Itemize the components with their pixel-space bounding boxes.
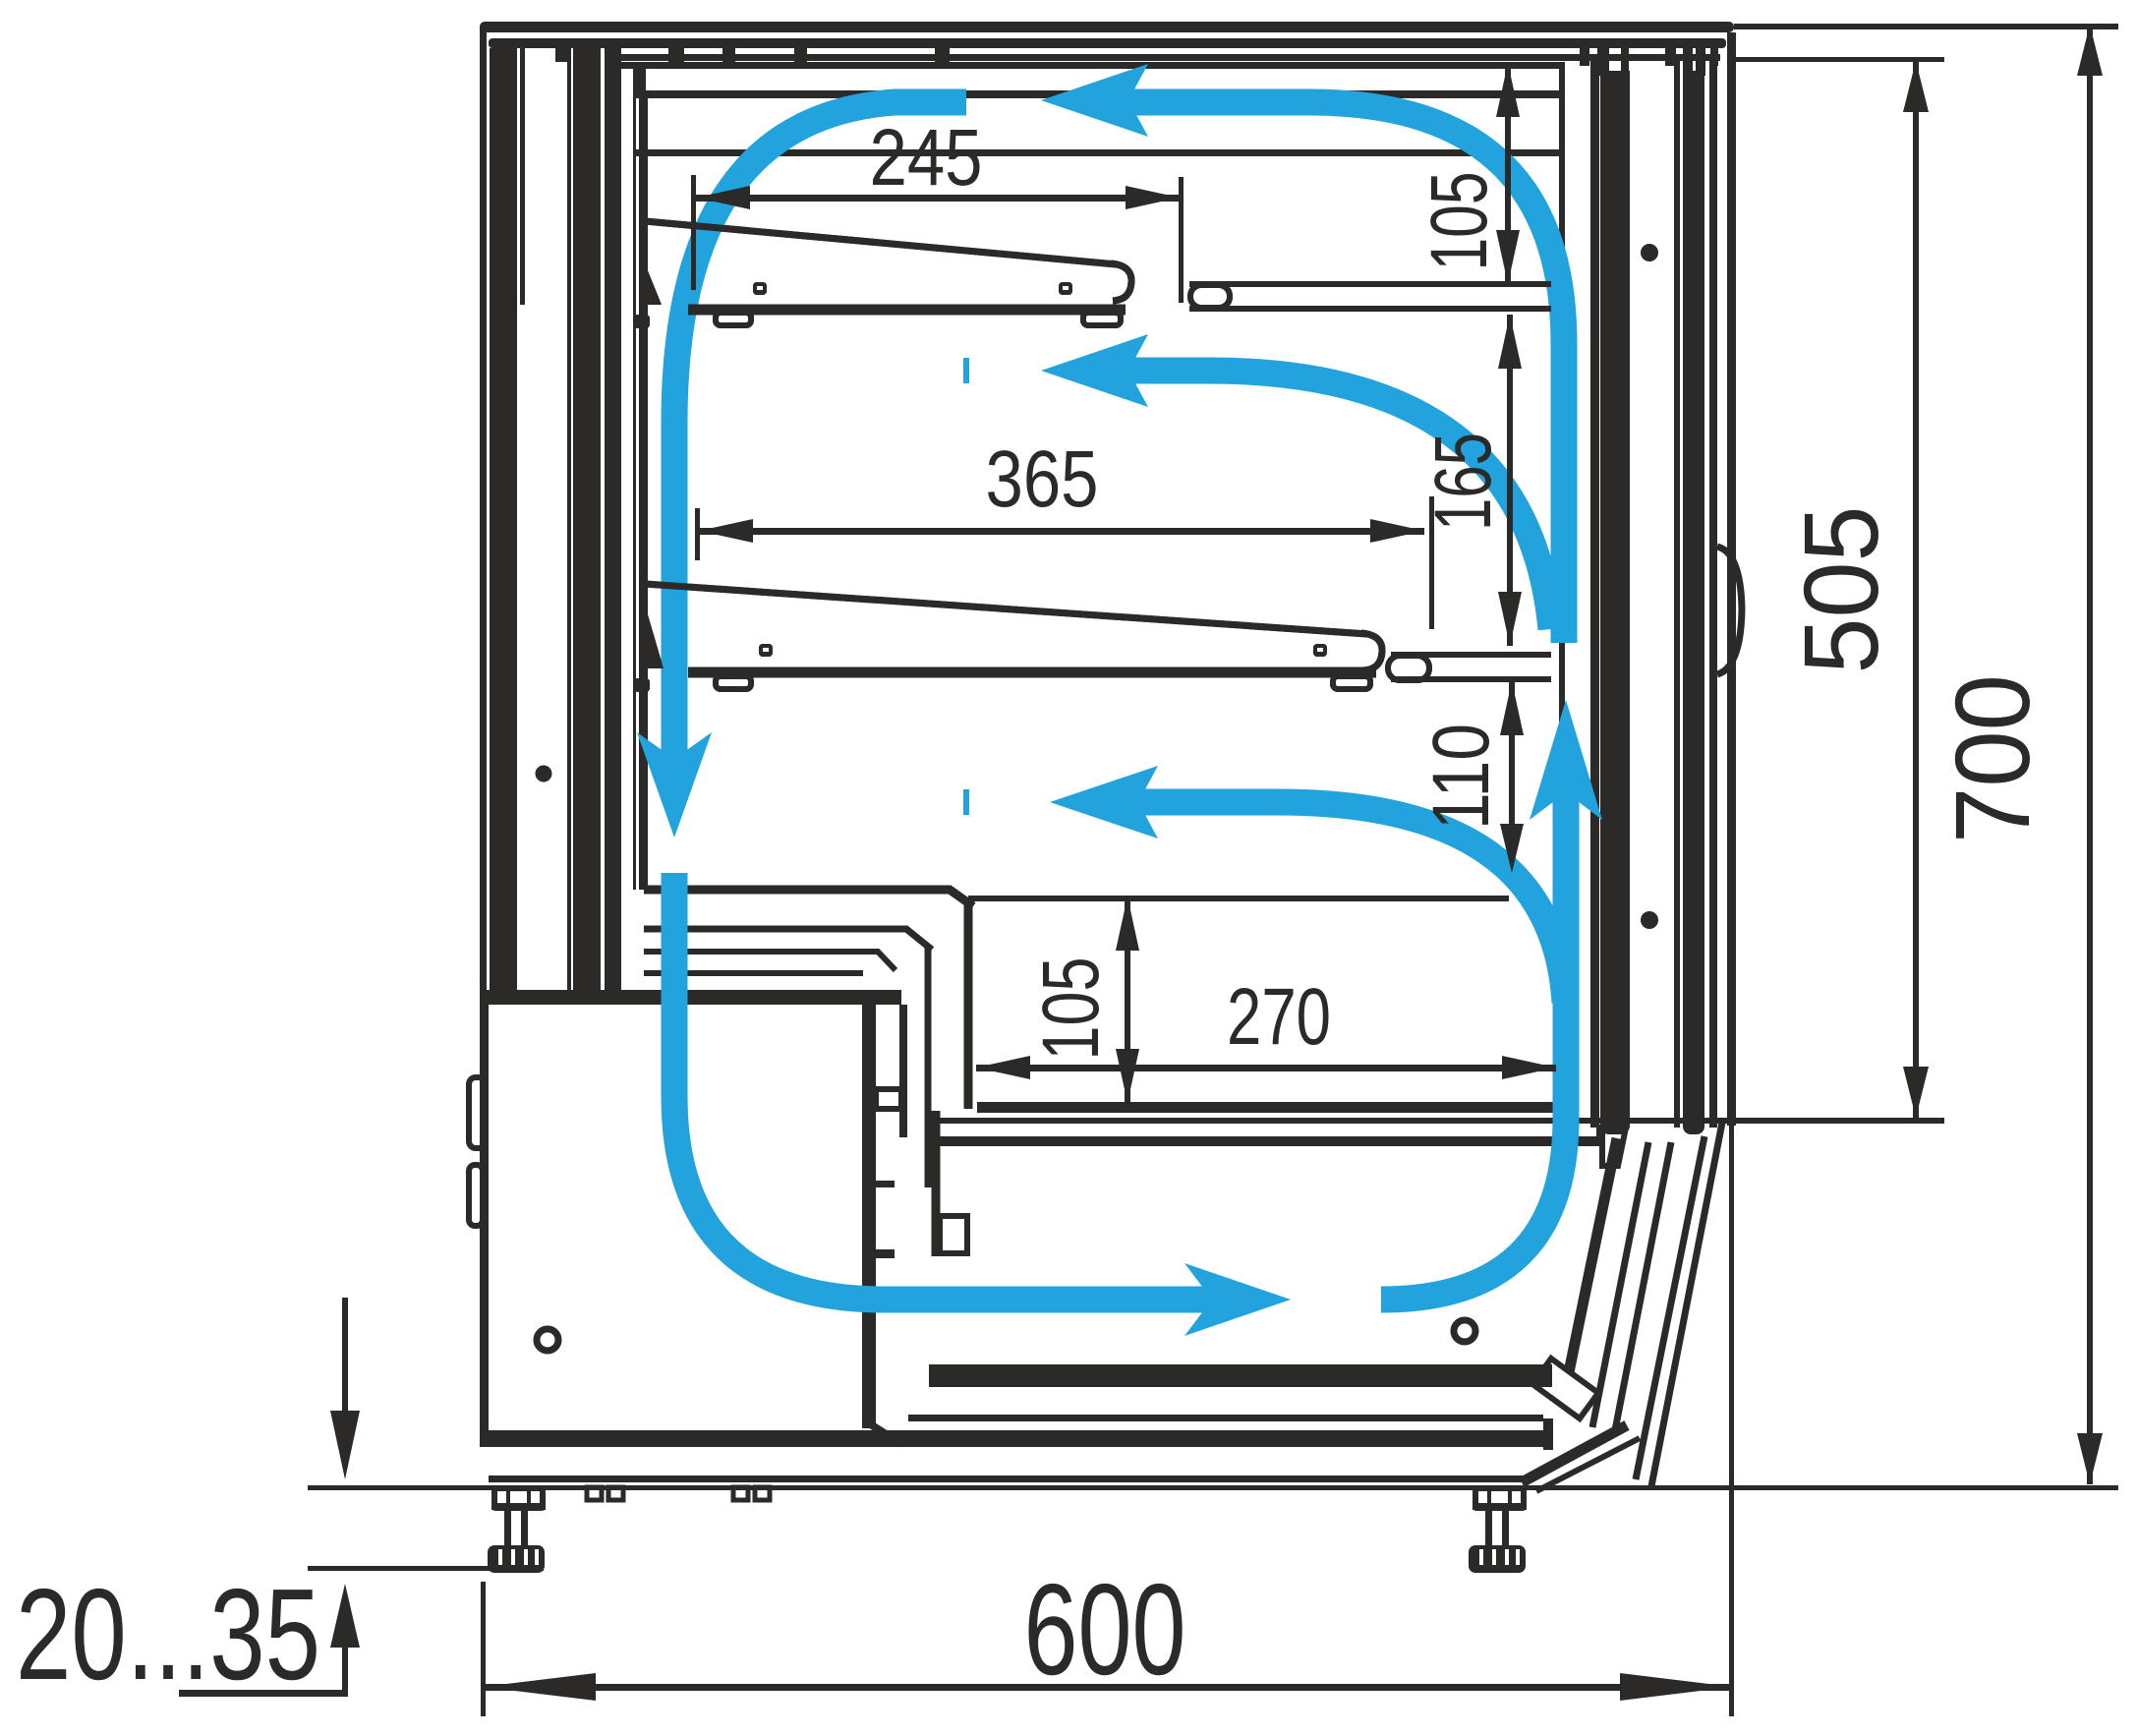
svg-text:365: 365: [986, 434, 1099, 524]
svg-text:105: 105: [1415, 172, 1504, 271]
svg-text:20...35: 20...35: [16, 1562, 320, 1707]
svg-text:600: 600: [1024, 1557, 1186, 1702]
svg-text:105: 105: [1026, 957, 1116, 1061]
svg-text:270: 270: [1227, 972, 1331, 1062]
svg-text:245: 245: [870, 113, 983, 203]
svg-text:110: 110: [1416, 723, 1506, 830]
svg-text:505: 505: [1781, 506, 1900, 674]
svg-text:165: 165: [1418, 433, 1508, 531]
svg-text:700: 700: [1933, 674, 2051, 843]
